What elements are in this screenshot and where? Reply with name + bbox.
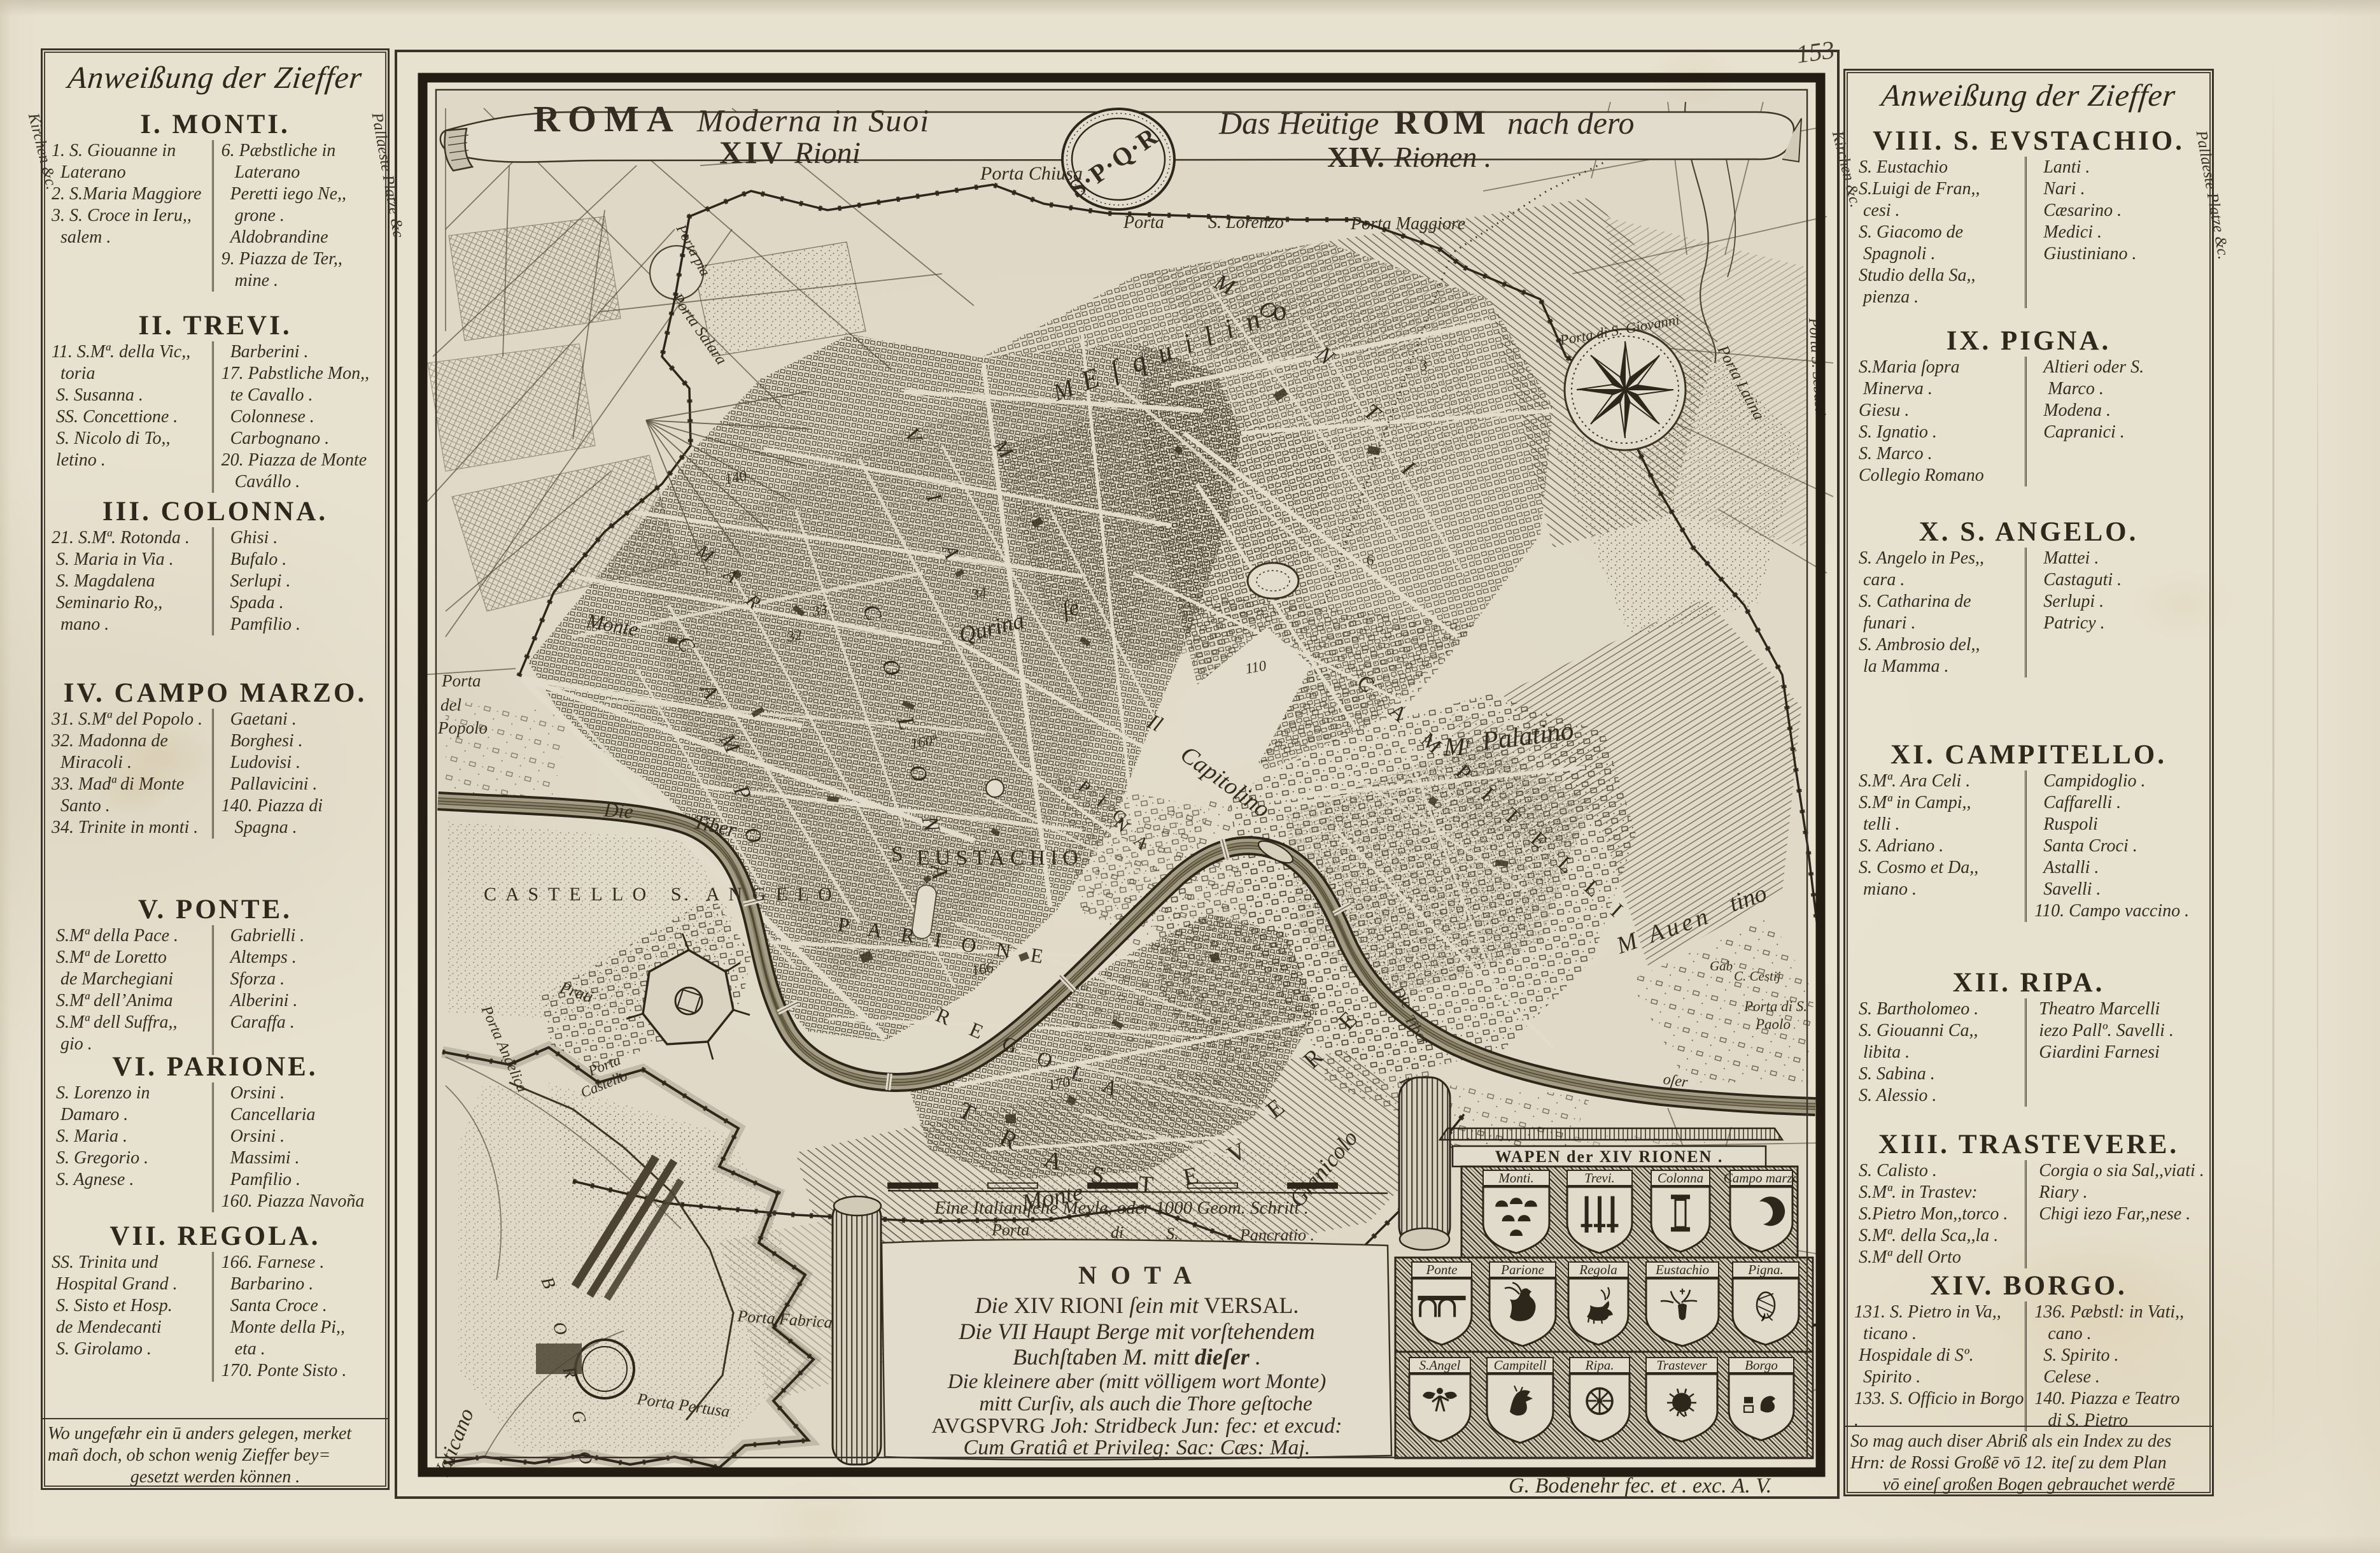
svg-text:G. Bodenehr fec. et . exc. A.: G. Bodenehr fec. et . exc. A. V. [1509,1474,1771,1498]
